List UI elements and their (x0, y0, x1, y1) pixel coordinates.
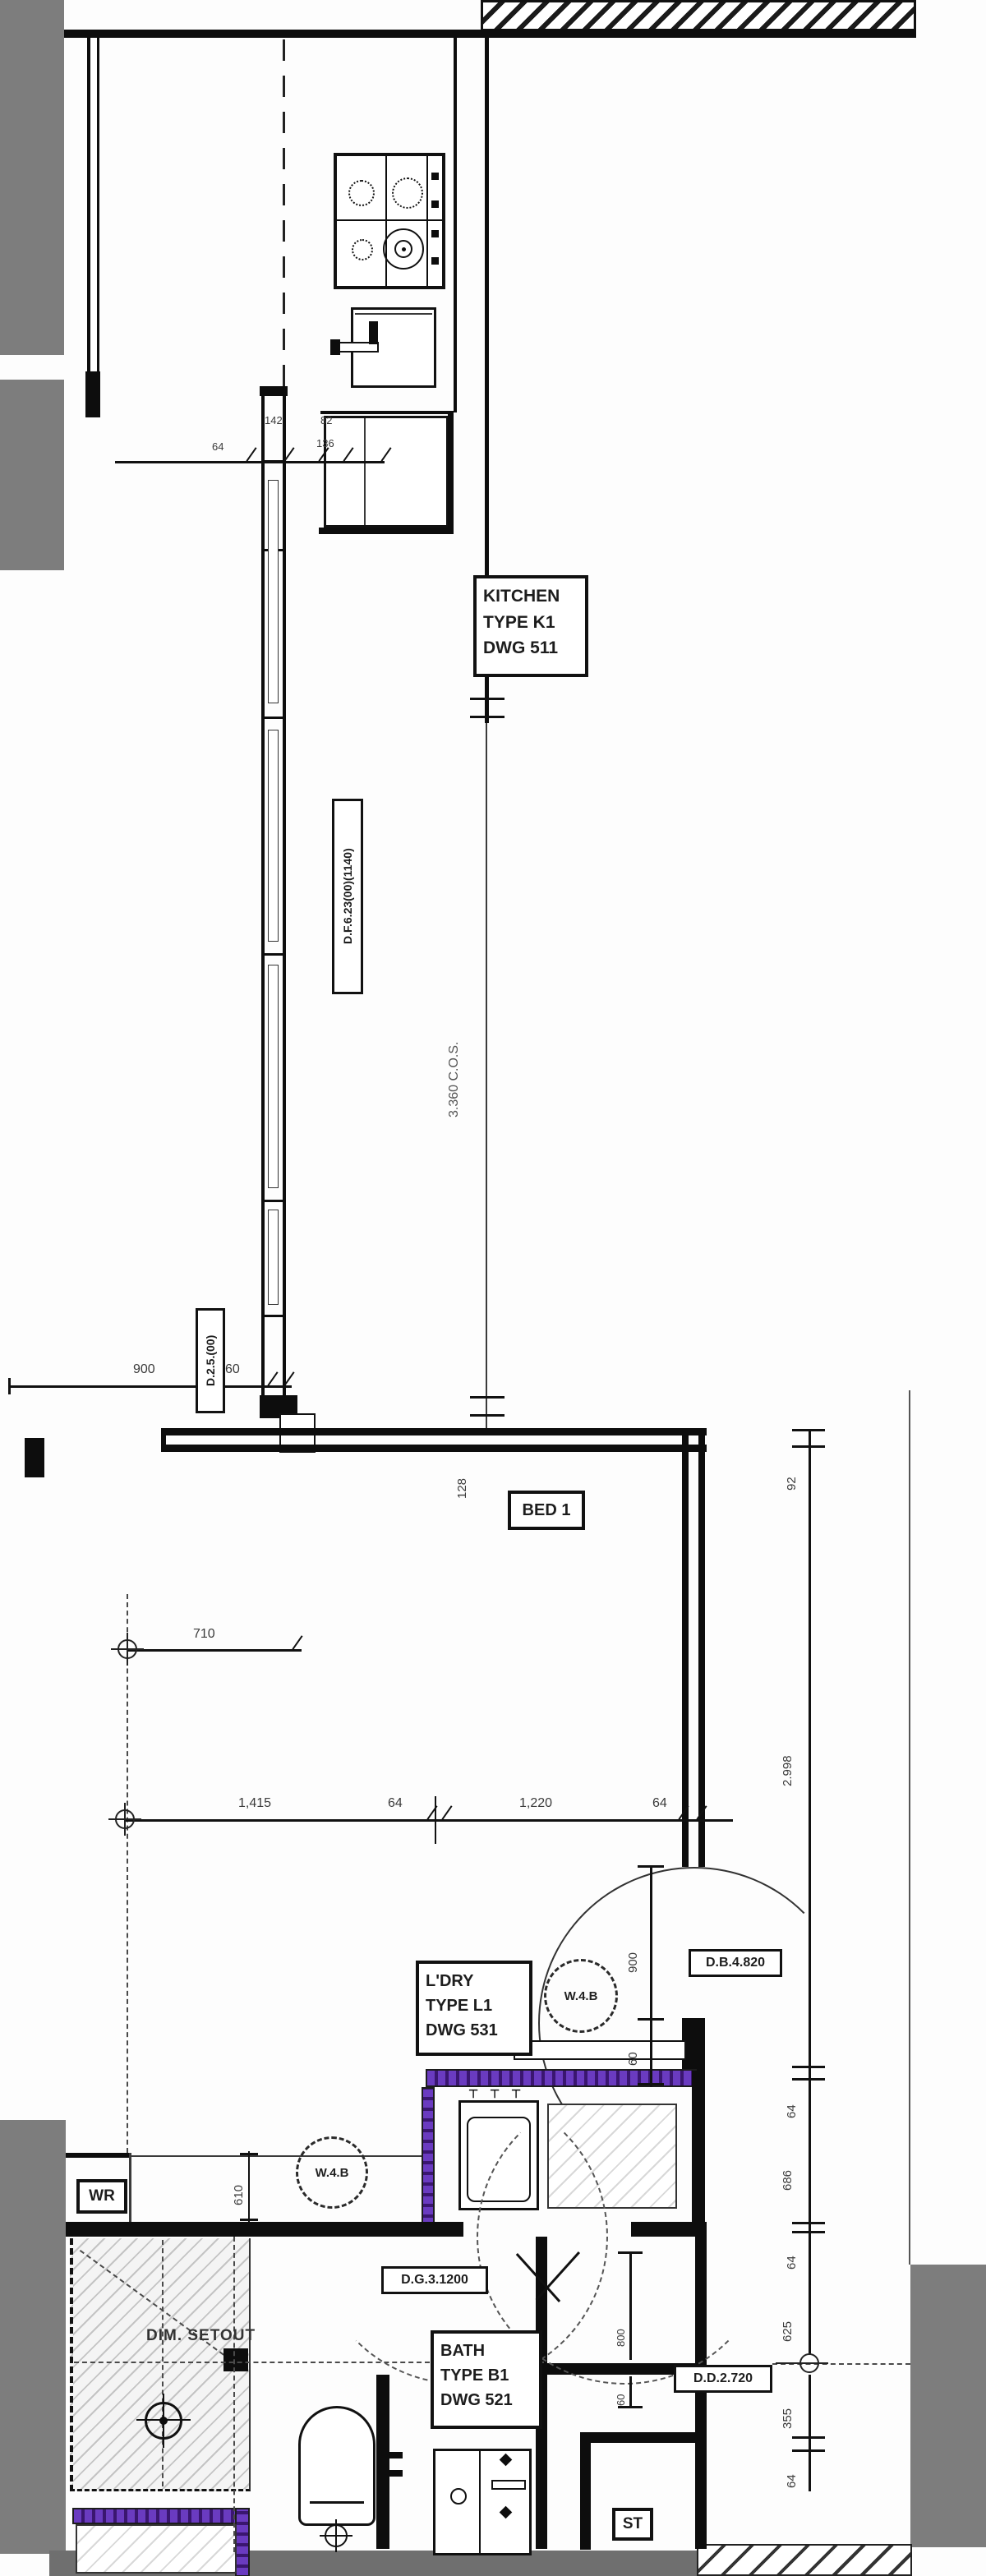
kitchen-tag-line3: DWG 511 (483, 635, 578, 661)
strip-pane (268, 1210, 279, 1305)
cooktop-knob-1 (431, 173, 439, 180)
trough-basin (76, 2524, 237, 2574)
shower-rose-center (159, 2417, 168, 2425)
kitchen-wall-left-cap (85, 371, 100, 417)
wc-bracket (389, 2470, 403, 2477)
dim-label: 625 (781, 2293, 795, 2342)
burner-icon (392, 177, 423, 209)
dim-tick (267, 1371, 278, 1386)
bed1-wall-top-inner (164, 1445, 707, 1452)
bath-tag-line2: TYPE B1 (440, 2363, 532, 2388)
strip-line-right (283, 386, 286, 1418)
dim-label: 64 (785, 2237, 799, 2270)
dim-tick-h (792, 2078, 825, 2081)
dim-tick-h (792, 2436, 825, 2439)
bed1-wall-cap (161, 1428, 166, 1452)
kitchen-wall-left-outer (87, 35, 90, 375)
kitchen-unit-wall-right (448, 414, 454, 529)
strip-pane (268, 965, 279, 1188)
dim-tick-h (792, 2222, 825, 2224)
cooktop-knob-2 (431, 200, 439, 208)
dim-tick-h (618, 2406, 643, 2408)
dim-tick-h (792, 2231, 825, 2233)
boundary-line-right (909, 1390, 910, 2265)
dim-tick-h (638, 2083, 664, 2085)
dim-tick-v (435, 1796, 436, 1844)
dim-tick-h (792, 2449, 825, 2452)
kitchen-unit-wall-bottom (319, 528, 454, 534)
bath-tag-line1: BATH (440, 2339, 532, 2363)
dim-label: 60 (615, 2380, 627, 2406)
dim-label: 142 (265, 414, 283, 426)
kitchen-bench-edge (454, 35, 457, 412)
dim-label: 686 (781, 2141, 795, 2191)
bed1-wall-top-outer (164, 1428, 707, 1435)
dim-line-ldry-door (650, 1867, 652, 2087)
centerline-tick (470, 698, 505, 700)
wall-top (64, 30, 916, 38)
dim-tick (246, 447, 256, 462)
bed1-tag: BED 1 (508, 1491, 585, 1530)
strip-line-left (261, 386, 265, 1418)
sink-inner-line (355, 313, 432, 315)
sink-faucet-spout (369, 321, 378, 344)
ldry-tag: L'DRY TYPE L1 DWG 531 (416, 1961, 532, 2056)
acoustic-wall-trough-top (72, 2508, 248, 2524)
dim-label: 64 (785, 2455, 799, 2488)
vanity-cabinet (433, 2449, 532, 2555)
dim-tick-h (792, 2066, 825, 2068)
setout-line-v (233, 2237, 235, 2552)
wr-partition (129, 2153, 131, 2222)
centerline-tick (470, 1396, 505, 1399)
dim-tick-h (618, 2251, 643, 2254)
bath-tag-line3: DWG 521 (440, 2388, 532, 2412)
dim-tick-h (638, 1865, 664, 1868)
washer-tag-label: W.4.B (564, 1989, 598, 2003)
strip-pane (268, 480, 279, 703)
dim-line-right-b (809, 2375, 811, 2491)
door-tag-df: D.F.6.23(00)(1140) (332, 799, 363, 994)
dim-tick (292, 1635, 302, 1650)
dim-label: 82 (320, 414, 332, 426)
dim-label: 64 (785, 2085, 799, 2118)
dim-label: 136 (316, 437, 334, 449)
kitchen-unit (324, 416, 449, 528)
dim-label: 610 (232, 2161, 246, 2205)
floor-waste-cross-v (335, 2519, 337, 2552)
ldry-tag-line3: DWG 531 (426, 2018, 523, 2043)
cooktop-knob-4 (431, 257, 439, 265)
cooktop-knob-3 (431, 230, 439, 237)
laundry-bench (514, 2040, 686, 2060)
dim-label: 64 (388, 1796, 403, 1811)
dim-tick-h (638, 2018, 664, 2021)
vanity-divider (479, 2451, 481, 2553)
dim-line-st-door-b (629, 2376, 632, 2408)
counter-line (320, 411, 454, 414)
dim-label: 1,415 (238, 1796, 271, 1811)
acoustic-wall-trough-side (235, 2508, 250, 2576)
dim-label: 800 (615, 2301, 627, 2347)
strip-divider (265, 1200, 283, 1202)
cooktop-divider-v (385, 156, 387, 286)
neighbour-wall-left-2 (0, 380, 64, 570)
bed1-wall-right-outer (682, 1428, 689, 1867)
vanity-drawer (491, 2480, 526, 2490)
target-cross-v (127, 1633, 128, 1666)
door-tag-dg: D.G.3.1200 (381, 2266, 488, 2294)
store-wall-left (580, 2443, 591, 2550)
dim-label: 60 (626, 2036, 640, 2066)
strip-divider (265, 953, 283, 956)
vanity-basin-icon (450, 2488, 467, 2505)
burner-icon (348, 180, 375, 206)
shower-pipe-line (162, 2240, 164, 2486)
hatched-wall-top (481, 0, 916, 31)
strip-divider (265, 1315, 283, 1317)
hatched-wall-bottom-right (697, 2544, 912, 2576)
neighbour-wall-bottom-left (0, 2120, 66, 2554)
dim-tick (441, 1805, 452, 1820)
dim-line-wr (248, 2151, 250, 2222)
door-tag-d25: D.2.5.(00) (196, 1308, 225, 1413)
dim-label: 64 (212, 440, 223, 453)
wr-wall-top (66, 2153, 130, 2158)
centerline-tick (470, 716, 505, 718)
dim-label: 60 (225, 1362, 240, 1377)
setout-centerline-vertical (486, 723, 487, 1431)
door-tag-db: D.B.4.820 (689, 1949, 782, 1977)
floor-plan-drawing: ⊤ ⊤ ⊤ W.4.B W.4.B (0, 0, 986, 2576)
sink-faucet-base (330, 339, 340, 355)
strip-cap-top (260, 386, 288, 396)
bed1-wall-right-inner (698, 1428, 705, 1867)
cooktop (334, 153, 445, 289)
dim-line-right-a (809, 1431, 811, 2355)
dim-label: 64 (652, 1796, 667, 1811)
dim-setout-label: DIM. SETOUT (146, 2327, 256, 2345)
dim-label: 1,220 (519, 1796, 552, 1811)
kitchen-tag: KITCHEN TYPE K1 DWG 511 (473, 575, 588, 677)
cooktop-knob-rail (426, 156, 428, 286)
centerline-tick (470, 1414, 505, 1417)
toilet-base-line (310, 2501, 364, 2504)
dim-label: 710 (193, 1627, 215, 1642)
dim-line-bed (125, 1819, 733, 1822)
kitchen-tag-line2: TYPE K1 (483, 610, 578, 636)
kitchen-wall-left-inner (97, 35, 99, 375)
door-tag-dd: D.D.2.720 (674, 2365, 772, 2393)
toilet (298, 2406, 376, 2526)
burner-icon (352, 239, 373, 260)
dim-label: 900 (133, 1362, 155, 1377)
dim-tick-end (8, 1378, 11, 1394)
neighbour-wall-bottom-right (910, 2265, 986, 2547)
dim-tick-h (792, 1429, 825, 1431)
wc-partition-wall (376, 2375, 389, 2549)
washer-tag-circle: W.4.B (544, 1959, 618, 2033)
dim-label: 92 (785, 1453, 799, 1491)
cos-label: 3.360 C.O.S. (447, 978, 462, 1117)
wc-bracket (389, 2452, 403, 2458)
neighbour-wall-top-left (0, 0, 64, 355)
dim-label: 2.998 (781, 1717, 795, 1786)
burner-coil-center (402, 247, 406, 251)
dim-line-left (8, 1385, 292, 1388)
dim-label: 900 (626, 1927, 640, 1973)
setout-line-left-v (127, 1594, 128, 2153)
bath-tag: BATH TYPE B1 DWG 521 (431, 2330, 542, 2429)
ldry-tag-line1: L'DRY (426, 1969, 523, 1993)
dim-label: 128 (455, 1456, 469, 1499)
setout-node (223, 2348, 248, 2371)
wr-tag: WR (76, 2179, 127, 2214)
dim-line-710 (127, 1649, 302, 1652)
dim-tick-h (792, 1445, 825, 1448)
store-wall-top (580, 2432, 705, 2443)
dim-tick-h (240, 2153, 258, 2155)
target-cross-h (776, 2362, 828, 2364)
strip-divider (265, 717, 283, 719)
dim-tick-h (240, 2219, 258, 2221)
kitchen-unit-divider (364, 418, 366, 525)
dim-line-st-door (629, 2251, 632, 2360)
st-tag: ST (612, 2508, 653, 2541)
dim-label: 355 (781, 2381, 795, 2429)
window-jamb-left (25, 1438, 44, 1477)
strip-pane (268, 730, 279, 942)
ldry-tag-line2: TYPE L1 (426, 1993, 523, 2018)
target-cross-v (124, 1803, 126, 1836)
kitchen-tag-line1: KITCHEN (483, 583, 578, 610)
